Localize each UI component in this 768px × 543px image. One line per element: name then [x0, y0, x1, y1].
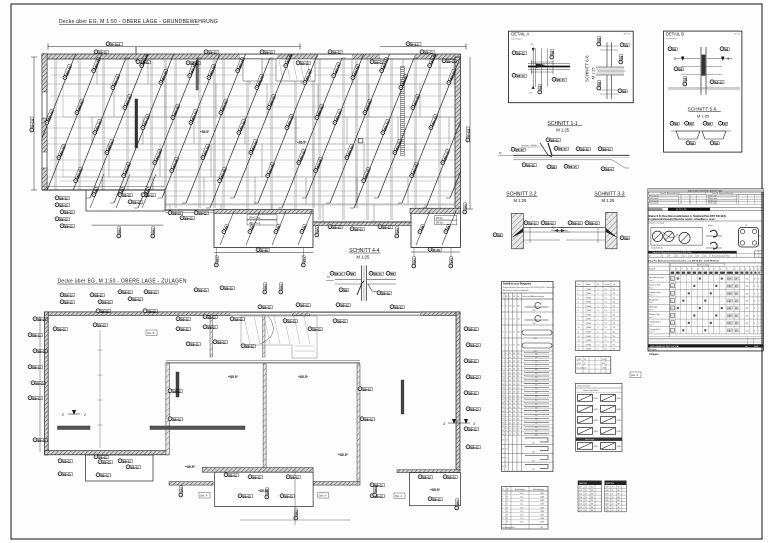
svg-text:4.1: 4.1 — [509, 368, 511, 370]
svg-text:Form und Abmessungen: Form und Abmessungen — [522, 295, 544, 298]
svg-text:16: 16 — [513, 380, 515, 382]
svg-text:420: 420 — [535, 369, 538, 371]
svg-text:16: 16 — [513, 434, 515, 436]
svg-text:12: 12 — [578, 336, 580, 338]
svg-text:8: 8 — [505, 430, 506, 432]
svg-text:1: 1 — [761, 316, 762, 318]
svg-text:8: 8 — [754, 323, 755, 325]
svg-text:6: 6 — [502, 511, 503, 513]
svg-text:+85.5²: +85.5² — [200, 130, 209, 134]
svg-text:4: 4 — [502, 504, 503, 506]
svg-text:Decke ü. EG: Decke ü. EG — [649, 285, 660, 287]
svg-text:8: 8 — [754, 286, 755, 288]
svg-text:8: 8 — [505, 407, 506, 409]
svg-text:Treppenlauf 2: Treppenlauf 2 — [649, 328, 661, 331]
svg-text:Ø8=20: Ø8=20 — [527, 164, 535, 168]
svg-text:30: 30 — [502, 466, 504, 468]
svg-text:3: 3 — [473, 422, 475, 426]
svg-text:Q188: Q188 — [577, 359, 581, 361]
svg-text:420: 420 — [535, 357, 538, 359]
svg-text:25: 25 — [517, 399, 519, 401]
svg-text:Q188A: Q188A — [586, 331, 592, 334]
svg-text:25: 25 — [517, 430, 519, 432]
svg-text:Q18: Q18 — [606, 490, 609, 492]
svg-text:5.0: 5.0 — [605, 323, 607, 325]
svg-text:Ø45: Ø45 — [316, 227, 320, 232]
svg-text:Ø8=15: Ø8=15 — [590, 222, 598, 226]
svg-text:4: 4 — [598, 306, 599, 308]
svg-text:420: 420 — [535, 430, 538, 432]
svg-text:M 1:25: M 1:25 — [357, 255, 370, 260]
svg-text:Pos 8: Pos 8 — [649, 332, 653, 334]
svg-text:151: 151 — [613, 344, 616, 346]
svg-text:148.8: 148.8 — [540, 507, 544, 509]
svg-text:8: 8 — [505, 426, 506, 428]
svg-text:Überzüge: Überzüge — [649, 306, 657, 309]
svg-text:Biegerollendurchmesser nach DI: Biegerollendurchmesser nach DIN 1045+(DI… — [503, 287, 555, 289]
svg-text:+85.5²: +85.5² — [338, 453, 349, 457]
svg-text:Ø8=15: Ø8=15 — [141, 61, 149, 65]
svg-text:8: 8 — [502, 518, 503, 520]
svg-text:16: 16 — [513, 365, 515, 367]
svg-text:1: 1 — [761, 286, 762, 288]
svg-text:45: 45 — [735, 316, 737, 318]
svg-text:Q18: Q18 — [606, 500, 609, 502]
svg-text:Zulagen oben: Zulagen oben — [649, 292, 661, 294]
svg-text:13: 13 — [502, 384, 504, 386]
svg-text:Bauteil: Bauteil — [649, 268, 656, 271]
svg-text:25: 25 — [517, 407, 519, 409]
svg-text:Q188A: Q188A — [586, 301, 592, 304]
svg-text:40: 40 — [745, 225, 747, 227]
svg-text:5: 5 — [674, 57, 676, 61]
svg-text:Ø8=15: Ø8=15 — [235, 318, 243, 322]
svg-text:Q188: Q188 — [593, 409, 597, 411]
svg-text:148.8: 148.8 — [540, 515, 544, 517]
svg-text:40: 40 — [671, 330, 673, 332]
svg-text:b: b — [754, 269, 755, 271]
svg-text:13: 13 — [578, 340, 580, 342]
svg-text:420: 420 — [535, 423, 538, 425]
svg-text:4.1: 4.1 — [509, 395, 511, 397]
svg-text:17: 17 — [502, 399, 504, 401]
svg-text:Ø8=15: Ø8=15 — [65, 211, 73, 215]
svg-text:Pos 6: Pos 6 — [649, 317, 653, 319]
svg-text:743: 743 — [540, 527, 543, 529]
svg-text:1: 1 — [669, 49, 670, 51]
svg-text:Ø8=15: Ø8=15 — [103, 301, 111, 305]
svg-text:MATTEN: MATTEN — [579, 482, 588, 485]
svg-text:Pos 2: Pos 2 — [649, 287, 653, 289]
svg-text:420: 420 — [535, 373, 538, 375]
svg-text:12.4: 12.4 — [520, 518, 523, 520]
svg-text:+85.5²: +85.5² — [228, 375, 239, 379]
svg-text:b: b — [681, 269, 682, 271]
svg-text:520: 520 — [533, 323, 536, 325]
svg-text:42: 42 — [584, 359, 586, 361]
svg-text:9: 9 — [578, 323, 579, 325]
svg-text:4: 4 — [598, 289, 599, 291]
svg-text:b: b — [676, 269, 677, 271]
svg-text:12: 12 — [502, 380, 504, 382]
svg-text:M 1:25: M 1:25 — [602, 198, 615, 203]
svg-text:Ø8=15: Ø8=15 — [363, 388, 371, 392]
svg-text:1: 1 — [711, 143, 712, 145]
svg-text:Q18: Q18 — [606, 487, 609, 489]
svg-text:8: 8 — [754, 330, 755, 332]
svg-text:88: 88 — [591, 507, 593, 509]
svg-text:Ø8=15: Ø8=15 — [603, 148, 611, 152]
svg-text:Ø8=15: Ø8=15 — [146, 194, 154, 198]
svg-text:b: b — [709, 269, 710, 271]
svg-text:88: 88 — [591, 490, 593, 492]
svg-text:b: b — [758, 269, 759, 271]
svg-text:420: 420 — [535, 388, 538, 390]
svg-text:4.1: 4.1 — [509, 411, 511, 413]
svg-text:Ø8=15: Ø8=15 — [133, 298, 141, 302]
svg-text:8: 8 — [507, 518, 508, 520]
svg-text:Q188: Q188 — [593, 398, 597, 400]
svg-text:5: 5 — [502, 507, 503, 509]
svg-text:+85.5²: +85.5² — [297, 141, 306, 145]
svg-text:4: 4 — [598, 340, 599, 342]
svg-text:8: 8 — [505, 372, 506, 374]
svg-text:Pos 1: Pos 1 — [649, 280, 653, 282]
svg-text:151: 151 — [613, 302, 616, 304]
svg-text:45: 45 — [735, 293, 737, 295]
svg-text:45: 45 — [735, 301, 737, 303]
svg-text:12.4: 12.4 — [520, 507, 523, 509]
svg-text:Ø8=15: Ø8=15 — [229, 474, 237, 478]
svg-text:Q188A: Q188A — [586, 296, 592, 299]
svg-text:4.1: 4.1 — [509, 384, 511, 386]
svg-text:Det. B: Det. B — [147, 331, 154, 335]
svg-text:151: 151 — [613, 323, 616, 325]
svg-text:7: 7 — [578, 314, 579, 316]
svg-text:420: 420 — [535, 407, 538, 409]
svg-text:525: 525 — [746, 301, 749, 303]
svg-text:Ø8=4: Ø8=4 — [606, 168, 613, 172]
svg-text:24: 24 — [502, 426, 504, 428]
svg-text:16: 16 — [513, 411, 515, 413]
svg-text:4: 4 — [598, 327, 599, 329]
svg-text:25: 25 — [517, 411, 519, 413]
svg-text:88: 88 — [618, 510, 620, 512]
svg-text:Ø8: Ø8 — [625, 237, 629, 241]
svg-text:Ø8=15: Ø8=15 — [38, 350, 46, 354]
svg-text:Ø8=15: Ø8=15 — [383, 226, 391, 230]
svg-text:Q188: Q188 — [616, 446, 620, 448]
svg-text:Gesamtgewicht: Gesamtgewicht — [502, 526, 515, 529]
svg-text:Ø45: Ø45 — [266, 489, 270, 494]
svg-text:8: 8 — [584, 363, 585, 365]
svg-text:1: 1 — [761, 323, 762, 325]
svg-text:Ø8=15: Ø8=15 — [471, 344, 479, 348]
svg-text:5.0: 5.0 — [605, 340, 607, 342]
svg-text:0.18: 0.18 — [727, 330, 730, 332]
svg-text:10: 10 — [505, 449, 507, 451]
svg-text:Det. A: Det. A — [200, 494, 207, 498]
svg-text:Q188: Q188 — [593, 431, 597, 433]
svg-text:88: 88 — [618, 497, 620, 499]
svg-text:25: 25 — [517, 353, 519, 355]
svg-text:420: 420 — [535, 365, 538, 367]
svg-text:16: 16 — [513, 392, 515, 394]
svg-text:4.1: 4.1 — [509, 365, 511, 367]
svg-text:420: 420 — [535, 400, 538, 402]
svg-text:Ø45: Ø45 — [180, 487, 184, 492]
svg-text:Ø8 kg: Ø8 kg — [436, 217, 443, 220]
svg-text:1: 1 — [599, 43, 601, 44]
svg-text:Ø8=15: Ø8=15 — [569, 165, 577, 169]
svg-text:M 1:25: M 1:25 — [514, 198, 527, 203]
svg-text:Ø8=15: Ø8=15 — [181, 328, 189, 332]
svg-text:obere Lage: obere Lage — [585, 439, 594, 441]
svg-text:12.4: 12.4 — [520, 504, 523, 506]
svg-text:14: 14 — [690, 255, 692, 257]
svg-text:45: 45 — [735, 308, 737, 310]
svg-text:4: 4 — [598, 344, 599, 346]
svg-text:4.1: 4.1 — [509, 353, 511, 355]
svg-text:Ø8=15: Ø8=15 — [573, 222, 581, 226]
svg-text:Ø8=15: Ø8=15 — [65, 225, 73, 229]
svg-text:5.0: 5.0 — [605, 310, 607, 312]
svg-text:525: 525 — [746, 330, 749, 332]
svg-text:kg: kg — [746, 346, 748, 348]
svg-text:4: 4 — [598, 319, 599, 321]
svg-text:Q188A: Q188A — [586, 339, 592, 342]
svg-text:Ø8=15: Ø8=15 — [173, 390, 181, 394]
svg-text:Ø8=15: Ø8=15 — [529, 222, 537, 226]
svg-text:25: 25 — [585, 507, 587, 509]
svg-text:b=unterkant: b=unterkant — [666, 37, 677, 40]
svg-text:8: 8 — [754, 301, 755, 303]
svg-text:148.8: 148.8 — [540, 518, 544, 520]
svg-text:5.0: 5.0 — [605, 289, 607, 291]
svg-text:Ø45: Ø45 — [396, 228, 400, 233]
svg-text:11: 11 — [502, 376, 504, 378]
svg-text:7: 7 — [502, 515, 503, 517]
svg-text:25: 25 — [585, 490, 587, 492]
svg-text:Q188A: Q188A — [586, 313, 592, 316]
svg-text:Allgemeine Übersichtstabelle: Allgemeine Übersichtstabelle — [503, 289, 530, 292]
svg-text:Q188: Q188 — [616, 431, 620, 433]
svg-text:16: 16 — [513, 415, 515, 417]
svg-text:Q188A: Q188A — [586, 335, 592, 338]
svg-text:25: 25 — [585, 487, 587, 489]
svg-text:Q188: Q188 — [616, 398, 620, 400]
svg-text:Stahl geprüft: Stahl geprüft — [649, 202, 659, 205]
svg-text:Q188A: Q188A — [586, 348, 592, 351]
svg-text:4.1: 4.1 — [509, 403, 511, 405]
svg-text:25: 25 — [585, 510, 587, 512]
svg-text:Ränder / Det: Ränder / Det — [649, 313, 660, 316]
svg-text:Ø8=15: Ø8=15 — [103, 461, 111, 465]
svg-text:20: 20 — [704, 255, 706, 257]
svg-text:Q18: Q18 — [579, 500, 582, 502]
svg-text:16: 16 — [513, 407, 515, 409]
svg-text:Ø8=15: Ø8=15 — [218, 341, 226, 345]
svg-text:handelsübliche: handelsübliche — [651, 248, 663, 250]
svg-text:88: 88 — [591, 510, 593, 512]
svg-text:28: 28 — [502, 449, 504, 451]
svg-text:Q18: Q18 — [606, 493, 609, 495]
svg-text:40: 40 — [671, 293, 673, 295]
svg-text:7: 7 — [502, 361, 503, 363]
svg-text:15: 15 — [578, 349, 580, 351]
svg-text:525: 525 — [746, 286, 749, 288]
svg-text:16: 16 — [513, 388, 515, 390]
svg-text:148.8: 148.8 — [540, 511, 544, 513]
svg-text:Ø8=15: Ø8=15 — [517, 74, 525, 78]
svg-text:Grundbewehrung: Grundbewehrung — [649, 276, 664, 279]
svg-text:10: 10 — [676, 255, 678, 257]
svg-text:0.18: 0.18 — [727, 323, 730, 325]
svg-text:40: 40 — [760, 235, 762, 237]
svg-text:2: 2 — [578, 293, 579, 295]
svg-text:420: 420 — [535, 392, 538, 394]
svg-text:8: 8 — [505, 380, 506, 382]
svg-text:4.1: 4.1 — [509, 419, 511, 421]
svg-text:4.1: 4.1 — [509, 407, 511, 409]
svg-text:Ø=18.6: Ø=18.6 — [111, 43, 121, 47]
svg-text:385: 385 — [532, 452, 535, 454]
svg-text:1: 1 — [761, 330, 762, 332]
svg-text:Ø8=15: Ø8=15 — [133, 201, 141, 205]
svg-text:b: b — [692, 269, 693, 271]
svg-text:Ø8=15: Ø8=15 — [301, 304, 309, 308]
svg-text:8: 8 — [505, 399, 506, 401]
svg-text:8: 8 — [505, 376, 506, 378]
svg-text:Ø8=15: Ø8=15 — [338, 320, 346, 324]
svg-text:Ø8=15: Ø8=15 — [469, 328, 477, 332]
svg-text:1: 1 — [686, 123, 687, 125]
svg-text:16: 16 — [513, 357, 515, 359]
svg-text:12.4: 12.4 — [520, 497, 523, 499]
svg-text:0.18: 0.18 — [727, 316, 730, 318]
svg-text:Gesamtlänge: Gesamtlänge — [533, 488, 544, 491]
svg-text:Q188: Q188 — [593, 446, 597, 448]
svg-text:Ø8=15: Ø8=15 — [243, 495, 251, 499]
svg-text:Q257: Q257 — [577, 363, 581, 365]
svg-text:15: 15 — [502, 392, 504, 394]
svg-text:Ø=9.5: Ø=9.5 — [411, 43, 419, 47]
svg-text:420: 420 — [535, 419, 538, 421]
svg-text:Ø45: Ø45 — [280, 284, 284, 289]
svg-text:25: 25 — [517, 419, 519, 421]
svg-text:420: 420 — [535, 396, 538, 398]
svg-text:M 1:10: M 1:10 — [734, 34, 741, 36]
svg-text:4: 4 — [598, 297, 599, 299]
svg-text:1: 1 — [704, 123, 705, 125]
svg-text:385: 385 — [532, 443, 535, 445]
svg-text:Ø8=15: Ø8=15 — [58, 328, 66, 332]
svg-text:151: 151 — [613, 336, 616, 338]
svg-text:Stahlliste zum Biegeplan: Stahlliste zum Biegeplan — [503, 283, 532, 286]
svg-text:Ø8=15: Ø8=15 — [60, 204, 68, 208]
svg-text:4.1: 4.1 — [509, 388, 511, 390]
svg-text:Ø8 kg: Ø8 kg — [436, 222, 443, 225]
svg-text:3: 3 — [502, 500, 503, 502]
svg-text:1: 1 — [552, 56, 554, 57]
svg-text:10: 10 — [505, 457, 507, 459]
svg-text:25: 25 — [517, 380, 519, 382]
svg-text:8: 8 — [505, 419, 506, 421]
svg-text:148.8: 148.8 — [540, 493, 544, 495]
svg-text:10: 10 — [578, 327, 580, 329]
svg-text:40: 40 — [671, 316, 673, 318]
svg-text:Q18: Q18 — [579, 497, 582, 499]
svg-text:Ø8=15: Ø8=15 — [246, 345, 254, 349]
svg-text:16: 16 — [513, 361, 515, 363]
svg-text:16: 16 — [513, 399, 515, 401]
svg-text:8: 8 — [505, 361, 506, 363]
svg-text:4: 4 — [598, 310, 599, 312]
svg-text:Ø8=15: Ø8=15 — [448, 476, 456, 480]
svg-text:Q188A: Q188A — [586, 305, 592, 308]
svg-text:26: 26 — [502, 434, 504, 436]
svg-text:b: b — [761, 269, 762, 271]
svg-text:25: 25 — [517, 365, 519, 367]
svg-text:Pos: Pos — [577, 284, 580, 286]
svg-text:420: 420 — [535, 377, 538, 379]
svg-text:untere Lage Matten: untere Lage Matten — [583, 389, 599, 392]
svg-text:8: 8 — [505, 422, 506, 424]
svg-text:+85.5²: +85.5² — [430, 488, 441, 492]
svg-text:Ø8=15: Ø8=15 — [447, 60, 455, 64]
svg-text:25: 25 — [517, 415, 519, 417]
svg-text:148.8: 148.8 — [540, 504, 544, 506]
svg-text:4: 4 — [578, 302, 579, 304]
svg-text:Pos 5: Pos 5 — [649, 310, 653, 312]
svg-text:8: 8 — [505, 395, 506, 397]
svg-text:40: 40 — [671, 323, 673, 325]
svg-text:+85.5²: +85.5² — [185, 465, 196, 469]
svg-text:10: 10 — [502, 372, 504, 374]
svg-text:25: 25 — [612, 497, 614, 499]
svg-text:b: b — [698, 269, 699, 271]
svg-text:DETAIL A: DETAIL A — [511, 32, 529, 37]
svg-text:25: 25 — [612, 493, 614, 495]
svg-text:Ø8=15: Ø8=15 — [335, 272, 343, 276]
svg-text:Ø8=15: Ø8=15 — [253, 476, 261, 480]
svg-text:4.1: 4.1 — [509, 380, 511, 382]
svg-text:Ø8=15: Ø8=15 — [191, 343, 199, 347]
svg-text:b: b — [735, 269, 736, 271]
svg-text:8: 8 — [505, 365, 506, 367]
svg-text:Ø8=15: Ø8=15 — [199, 289, 207, 293]
svg-text:8: 8 — [754, 316, 755, 318]
svg-text:4: 4 — [598, 314, 599, 316]
svg-text:40: 40 — [671, 301, 673, 303]
svg-text:Ø8=15: Ø8=15 — [65, 294, 73, 298]
svg-text:4: 4 — [598, 349, 599, 351]
svg-text:Ø8=15: Ø8=15 — [209, 51, 217, 55]
svg-text:4.1: 4.1 — [509, 434, 511, 436]
svg-text:Ø8=15: Ø8=15 — [63, 473, 71, 477]
svg-text:0.18: 0.18 — [727, 301, 730, 303]
svg-text:29: 29 — [502, 457, 504, 459]
svg-text:148.8: 148.8 — [540, 522, 544, 524]
svg-text:Ø8=15: Ø8=15 — [38, 439, 46, 443]
svg-text:525: 525 — [746, 323, 749, 325]
svg-text:25: 25 — [517, 361, 519, 363]
svg-text:420: 420 — [535, 411, 538, 413]
svg-text:151: 151 — [613, 340, 616, 342]
svg-text:12: 12 — [680, 203, 682, 205]
svg-text:1: 1 — [621, 45, 622, 47]
svg-text:M 1:25: M 1:25 — [697, 113, 710, 118]
